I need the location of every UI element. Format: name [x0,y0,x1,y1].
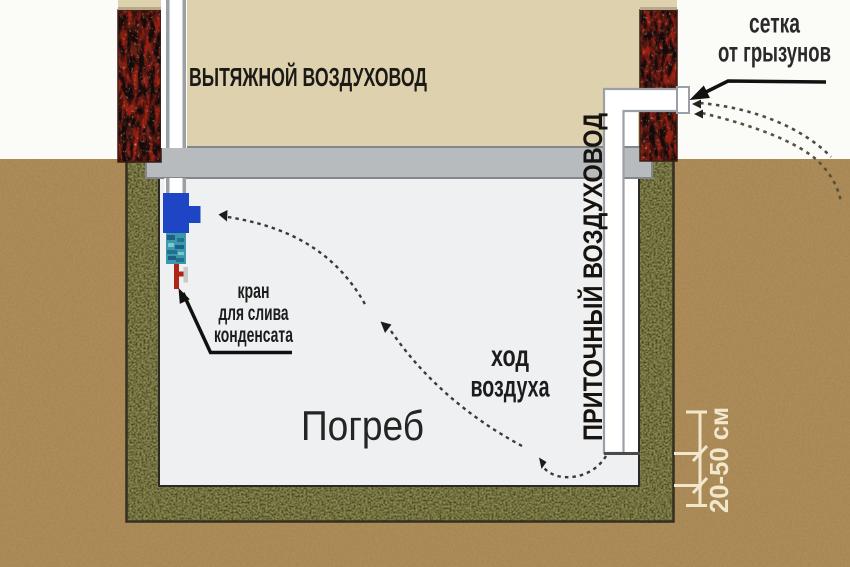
svg-text:ВЫТЯЖНОЙ ВОЗДУХОВОД: ВЫТЯЖНОЙ ВОЗДУХОВОД [189,62,427,92]
svg-text:для слива: для слива [219,302,289,325]
svg-text:воздуха: воздуха [471,371,550,404]
svg-text:от грызунов: от грызунов [718,37,831,68]
svg-text:ход: ход [491,340,529,373]
svg-text:конденсата: конденсата [214,324,293,347]
svg-text:Погреб: Погреб [301,402,424,449]
svg-text:20-50 см: 20-50 см [704,407,734,513]
svg-text:сетка: сетка [749,8,800,39]
svg-text:ПРИТОЧНЫЙ ВОЗДУХОВОД: ПРИТОЧНЫЙ ВОЗДУХОВОД [577,113,608,441]
svg-text:кран: кран [238,280,270,303]
